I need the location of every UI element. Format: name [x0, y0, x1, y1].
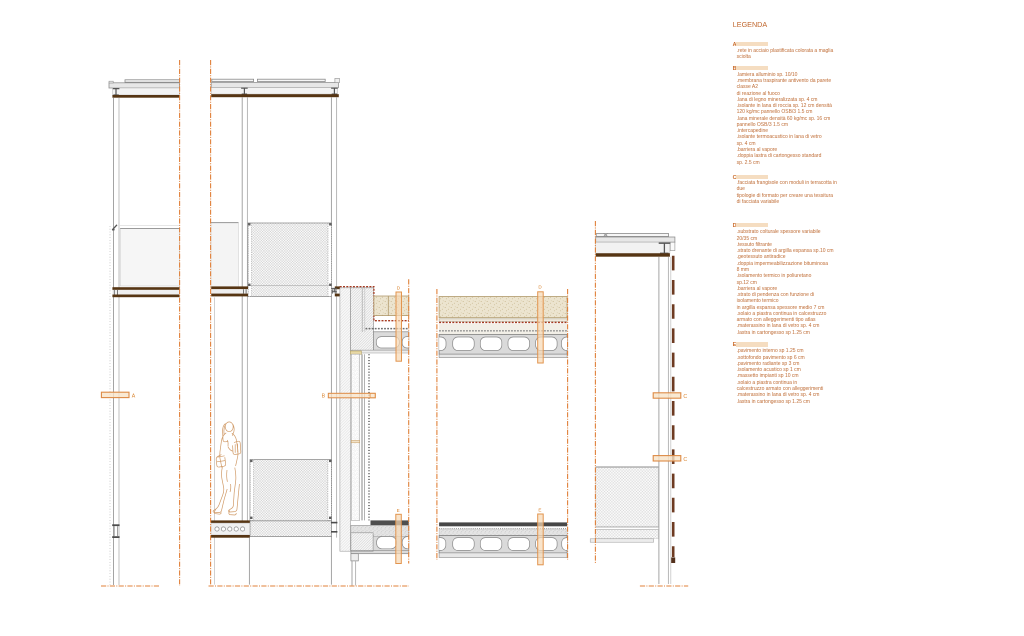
svg-text:D: D: [397, 285, 401, 290]
svg-text:C: C: [683, 394, 687, 400]
svg-text:C: C: [683, 457, 687, 463]
svg-text:E: E: [397, 508, 400, 513]
svg-text:B: B: [322, 394, 326, 400]
svg-text:E: E: [538, 508, 541, 513]
svg-text:A: A: [132, 394, 136, 400]
svg-text:D: D: [538, 285, 542, 290]
